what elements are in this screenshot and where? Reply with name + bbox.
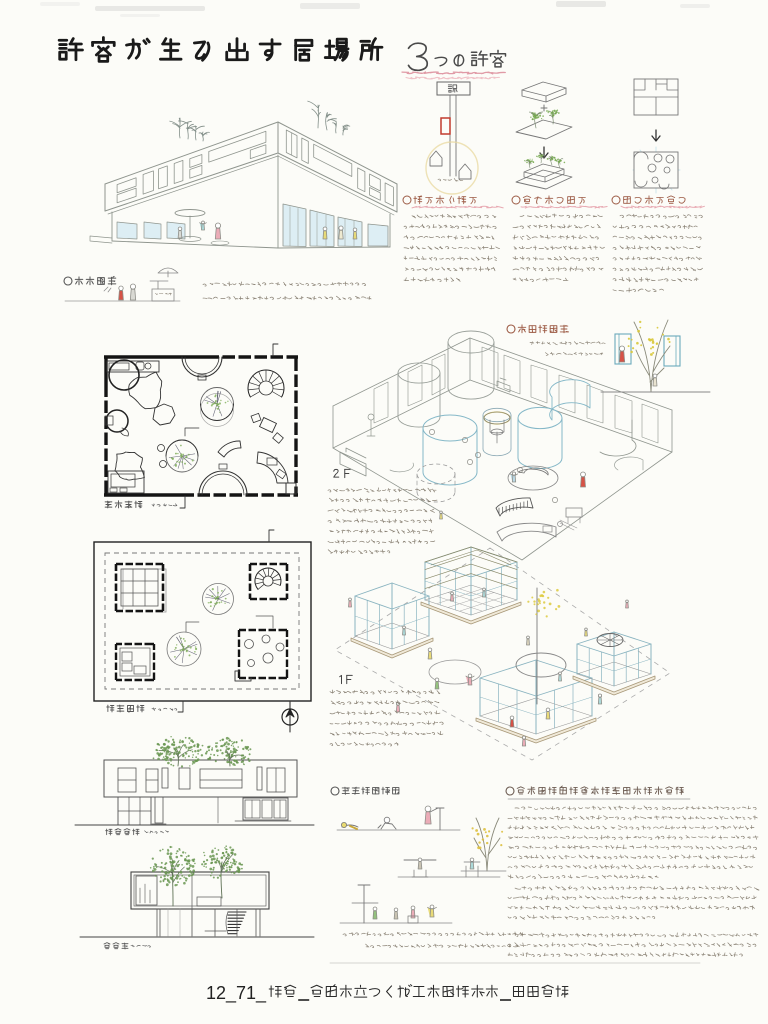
- svg-text:12_71_: 12_71_: [206, 983, 267, 1004]
